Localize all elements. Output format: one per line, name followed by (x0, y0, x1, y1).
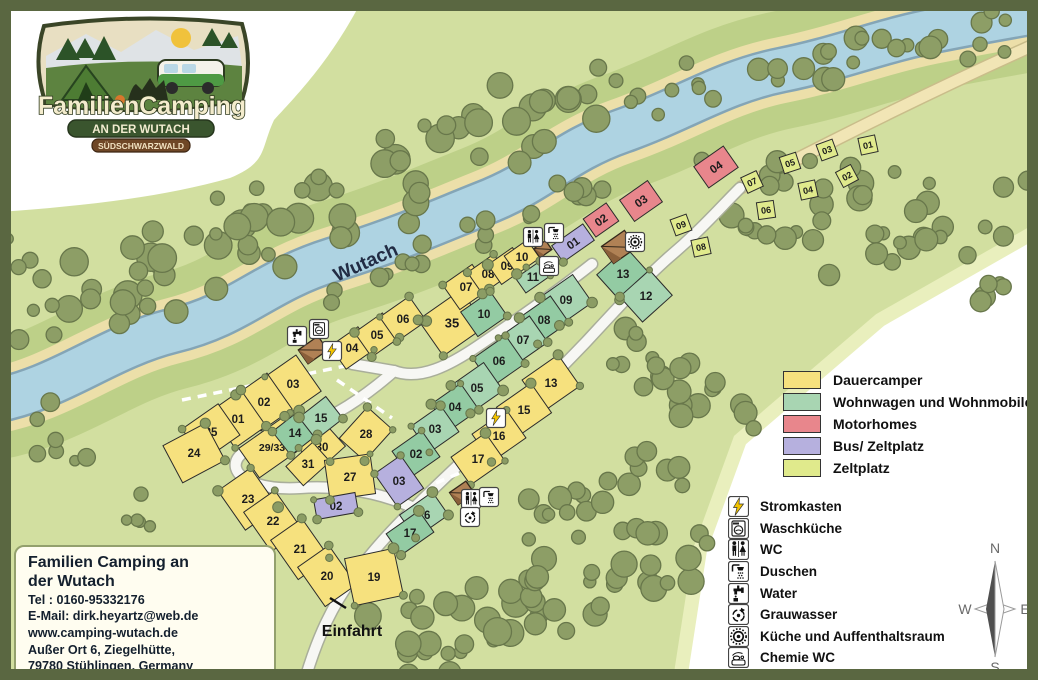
legend-facility-label: Stromkasten (760, 499, 842, 514)
washer-icon (728, 518, 749, 539)
legend-facility-label: WC (760, 542, 783, 557)
entrance-label: Einfahrt (322, 623, 383, 640)
shower-icon (480, 488, 499, 507)
washer-icon (310, 320, 329, 339)
plot-number: 10 (478, 309, 491, 321)
contact-address-line1: Außer Ort 6, Ziegelhütte, (28, 642, 264, 659)
legend-swatch-dauer (783, 371, 821, 389)
plot-number: 27 (344, 472, 357, 484)
chem-icon (728, 647, 749, 668)
legend-type-label: Bus/ Zeltplatz (833, 438, 924, 454)
plot-number: 08 (538, 315, 551, 327)
camping-logo: FamilienCamping AN DER WUTACH SÜDSCHWARZ… (16, 8, 268, 166)
logo-subtitle: AN DER WUTACH (92, 124, 190, 136)
plot-number: 16 (493, 431, 506, 443)
svg-text:08: 08 (695, 241, 707, 253)
legend-facility-tap: Water (728, 582, 945, 604)
plot-number: 02 (410, 449, 423, 461)
camp-road (352, 364, 394, 371)
contact-phone: Tel : 0160-95332176 (28, 592, 264, 609)
plot-number: 07 (517, 335, 530, 347)
svg-text:06: 06 (760, 205, 771, 216)
plot-number: 02 (258, 397, 271, 409)
lightning-icon (728, 496, 749, 517)
plot-number: 03 (393, 476, 406, 488)
legend-type-label: Zeltplatz (833, 460, 890, 476)
legend-type-label: Motorhomes (833, 416, 917, 432)
plot-number: 01 (232, 414, 245, 426)
wc-icon (462, 490, 481, 509)
contact-address-line2: 79780 Stühlingen, Germany (28, 658, 264, 675)
plot-number: 03 (287, 379, 300, 391)
svg-text:01: 01 (862, 139, 874, 151)
compass-rose: N W E S (953, 535, 1037, 675)
facility-legend: StromkastenWaschkücheWCDuschenWaterGrauw… (728, 496, 945, 669)
plot-number: 06 (397, 314, 410, 326)
campsite-map-page: 04050635070809100302012524232221201929/3… (0, 0, 1038, 680)
chem-icon (540, 257, 559, 276)
plot-number: 03 (429, 424, 442, 436)
legend-swatch-bus (783, 437, 821, 455)
compass-n: N (990, 540, 1000, 556)
plot-number: 31 (302, 459, 315, 471)
plot-number: 12 (640, 291, 653, 303)
kitchen-icon (728, 626, 749, 647)
wc-icon (524, 228, 543, 247)
contact-title-line2: der Wutach (28, 573, 264, 592)
wc-icon (728, 539, 749, 560)
plot-number: 14 (289, 428, 302, 440)
contact-card: Familien Camping an der Wutach Tel : 016… (14, 545, 276, 680)
shower-icon (545, 224, 564, 243)
kitchen-icon (626, 233, 645, 252)
legend-swatch-motor (783, 415, 821, 433)
legend-facility-wc: WC (728, 539, 945, 561)
plot-number: 15 (518, 405, 531, 417)
legend-facility-label: Chemie WC (760, 650, 835, 665)
legend-facility-label: Waschküche (760, 521, 842, 536)
compass-w: W (958, 601, 972, 617)
recycle-icon (728, 604, 749, 625)
contact-website: www.camping-wutach.de (28, 625, 264, 642)
plot-zelt-08: 08 (691, 237, 711, 257)
plot-number: 07 (460, 282, 473, 294)
legend-type-label: Dauercamper (833, 372, 923, 388)
legend-type-motor: Motorhomes (783, 414, 1032, 433)
plot-number: 28 (360, 429, 373, 441)
plot-number: 20 (321, 571, 334, 583)
plot-number: 23 (242, 494, 255, 506)
legend-facility-lightning: Stromkasten (728, 496, 945, 518)
plot-number: 04 (449, 402, 462, 414)
plot-number: 21 (294, 544, 307, 556)
plot-number: 17 (472, 454, 485, 466)
tap-icon (728, 583, 749, 604)
plot-number: 24 (188, 448, 201, 460)
compass-e: E (1020, 601, 1029, 617)
plot-zelt-06: 06 (756, 200, 775, 219)
plot-type-legend: DauercamperWohnwagen und WohnmobileMotor… (783, 370, 1032, 480)
tap-icon (288, 327, 307, 346)
plot-number: 09 (560, 295, 573, 307)
legend-facility-recycle: Grauwasser (728, 604, 945, 626)
logo-title: FamilienCamping (38, 92, 246, 120)
lightning-icon (487, 409, 506, 428)
recycle-icon (461, 508, 480, 527)
plot-zelt-04: 04 (798, 180, 818, 200)
plot-number: 35 (445, 316, 459, 331)
contact-title-line1: Familien Camping an (28, 554, 264, 573)
plot-number: 22 (267, 516, 280, 528)
legend-swatch-wohn (783, 393, 821, 411)
legend-facility-label: Küche und Auffenthaltsraum (760, 629, 945, 644)
legend-swatch-zelt (783, 459, 821, 477)
plot-number: 05 (471, 383, 484, 395)
plot-number: 10 (516, 252, 529, 264)
shower-icon (728, 561, 749, 582)
legend-type-dauer: Dauercamper (783, 370, 1032, 389)
plot-number: 13 (617, 269, 630, 281)
legend-facility-shower: Duschen (728, 561, 945, 583)
legend-facility-kitchen: Küche und Auffenthaltsraum (728, 626, 945, 648)
plot-number: 06 (493, 356, 506, 368)
plot-number: 05 (371, 330, 384, 342)
lightning-icon (323, 342, 342, 361)
plot-number: 15 (315, 413, 328, 425)
plot-zelt-01: 01 (858, 135, 878, 155)
contact-email: E-Mail: dirk.heyartz@web.de (28, 608, 264, 625)
legend-facility-washer: Waschküche (728, 518, 945, 540)
legend-type-wohn: Wohnwagen und Wohnmobile (783, 392, 1032, 411)
plot-number: 11 (527, 272, 540, 284)
plot-number: 04 (346, 343, 359, 355)
legend-type-label: Wohnwagen und Wohnmobile (833, 394, 1032, 410)
legend-type-zelt: Zeltplatz (783, 458, 1032, 477)
plot-number: 19 (368, 572, 381, 584)
legend-facility-label: Water (760, 586, 797, 601)
legend-facility-label: Duschen (760, 564, 817, 579)
plot-number: 13 (545, 378, 558, 390)
legend-type-bus: Bus/ Zeltplatz (783, 436, 1032, 455)
compass-s: S (990, 659, 999, 675)
legend-facility-label: Grauwasser (760, 607, 837, 622)
svg-text:04: 04 (802, 184, 814, 196)
legend-facility-chem: Chemie WC (728, 647, 945, 669)
logo-badge-text: SÜDSCHWARZWALD (98, 141, 184, 151)
